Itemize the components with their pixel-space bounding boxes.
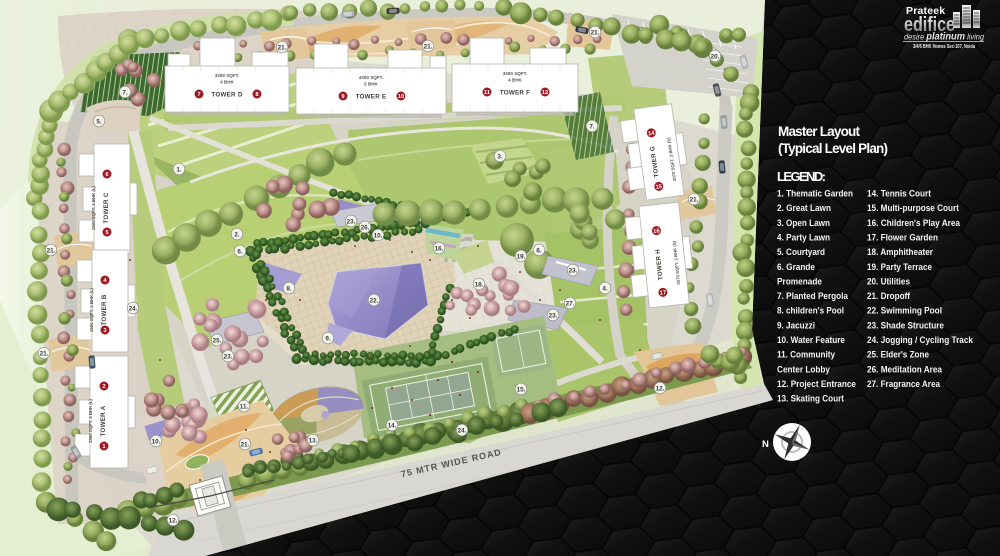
svg-text:18. Amphitheater: 18. Amphitheater [867, 247, 933, 257]
svg-text:22.: 22. [370, 297, 379, 304]
svg-text:23. Shade Structure: 23. Shade Structure [867, 320, 944, 330]
svg-text:TOWER B: TOWER B [101, 294, 108, 325]
svg-text:4 BHK: 4 BHK [508, 78, 522, 83]
svg-text:9. Jacuzzi: 9. Jacuzzi [777, 320, 815, 330]
svg-text:19. Party Terrace: 19. Party Terrace [867, 262, 932, 272]
svg-text:12.: 12. [169, 517, 178, 524]
svg-text:17: 17 [659, 290, 666, 297]
svg-text:5.: 5. [96, 118, 102, 125]
svg-text:2500 SQFT. 3 BHK (L): 2500 SQFT. 3 BHK (L) [89, 288, 94, 332]
svg-text:7: 7 [197, 92, 200, 98]
svg-text:10. Water Feature: 10. Water Feature [777, 335, 845, 345]
svg-text:3/4/5 BHK Homes Sec-107, Noida: 3/4/5 BHK Homes Sec-107, Noida [913, 44, 976, 50]
svg-text:11: 11 [484, 90, 491, 96]
svg-text:(Typical Level Plan): (Typical Level Plan) [778, 141, 888, 156]
svg-text:3300 SQFT.: 3300 SQFT. [215, 73, 240, 78]
svg-text:2.: 2. [234, 231, 240, 238]
svg-text:5 BHK: 5 BHK [364, 82, 378, 87]
svg-text:Promenade: Promenade [777, 276, 822, 286]
svg-text:20.: 20. [711, 53, 720, 60]
svg-text:26. Meditation Area: 26. Meditation Area [867, 364, 943, 374]
svg-text:3. Open Lawn: 3. Open Lawn [777, 218, 830, 228]
svg-text:14. Tennis Court: 14. Tennis Court [867, 189, 931, 199]
svg-text:Center Lobby: Center Lobby [777, 364, 831, 374]
svg-text:21.: 21. [690, 196, 699, 203]
svg-text:2500 SQFT. 3 BHK (L): 2500 SQFT. 3 BHK (L) [88, 399, 93, 443]
svg-text:TOWER E: TOWER E [356, 94, 387, 101]
svg-text:desire platinum living: desire platinum living [904, 32, 985, 43]
svg-text:6. Grande: 6. Grande [777, 262, 815, 272]
svg-text:21.: 21. [241, 441, 250, 448]
svg-text:3300 SQFT.: 3300 SQFT. [503, 71, 528, 76]
svg-text:16.: 16. [435, 245, 444, 252]
svg-text:21.: 21. [424, 43, 433, 50]
svg-text:LEGEND:: LEGEND: [777, 169, 826, 184]
svg-text:20. Utilities: 20. Utilities [867, 276, 910, 286]
svg-text:TOWER A: TOWER A [100, 405, 107, 436]
svg-text:8. children's Pool: 8. children's Pool [777, 306, 844, 316]
svg-text:15. Multi-purpose Court: 15. Multi-purpose Court [867, 203, 959, 213]
svg-text:1. Thematic Garden: 1. Thematic Garden [777, 189, 853, 199]
svg-text:21.: 21. [40, 350, 49, 357]
svg-text:27.: 27. [566, 300, 575, 307]
svg-text:13.: 13. [309, 437, 318, 444]
svg-text:21.: 21. [47, 247, 56, 254]
svg-text:10.: 10. [374, 232, 383, 239]
svg-text:21. Dropoff: 21. Dropoff [867, 291, 911, 301]
svg-text:10: 10 [398, 94, 404, 100]
svg-text:2: 2 [102, 384, 105, 390]
svg-text:11.: 11. [240, 403, 249, 410]
svg-text:9.: 9. [325, 335, 331, 342]
svg-text:23.: 23. [224, 353, 233, 360]
svg-text:12: 12 [542, 90, 548, 96]
svg-text:23.: 23. [347, 218, 356, 225]
svg-text:21.: 21. [591, 29, 600, 36]
svg-text:3.: 3. [497, 153, 503, 160]
svg-text:4 BHK: 4 BHK [220, 80, 234, 85]
svg-text:11. Community: 11. Community [777, 350, 836, 360]
svg-text:4300 SQFT.: 4300 SQFT. [359, 75, 384, 80]
svg-text:TOWER C: TOWER C [103, 192, 110, 223]
svg-text:2500 SQFT. 3 BHK (L): 2500 SQFT. 3 BHK (L) [91, 186, 96, 230]
svg-text:7. Planted Pergola: 7. Planted Pergola [777, 291, 849, 301]
svg-text:6.: 6. [237, 248, 243, 255]
svg-text:15.: 15. [517, 386, 526, 393]
svg-text:1.: 1. [176, 166, 182, 173]
svg-text:2. Great Lawn: 2. Great Lawn [777, 203, 831, 213]
svg-text:19.: 19. [517, 253, 526, 260]
svg-text:7.: 7. [122, 89, 128, 96]
svg-text:23.: 23. [549, 312, 558, 319]
svg-text:21.: 21. [278, 44, 287, 51]
svg-text:14.: 14. [388, 422, 397, 429]
svg-text:6.: 6. [536, 247, 542, 254]
svg-text:24.: 24. [458, 427, 467, 434]
svg-text:24.: 24. [129, 305, 138, 312]
svg-text:17. Flower Garden: 17. Flower Garden [867, 233, 938, 243]
svg-text:TOWER D: TOWER D [211, 92, 242, 99]
svg-text:13. Skating Court: 13. Skating Court [777, 394, 844, 404]
svg-text:4. Party Lawn: 4. Party Lawn [777, 233, 830, 243]
svg-text:23.: 23. [569, 267, 578, 274]
svg-text:N: N [762, 439, 769, 450]
svg-text:27. Fragrance Area: 27. Fragrance Area [867, 379, 941, 389]
svg-text:12. Project Entrance: 12. Project Entrance [777, 379, 856, 389]
svg-text:26.: 26. [361, 224, 370, 231]
svg-text:TOWER F: TOWER F [500, 90, 531, 97]
svg-text:8.: 8. [286, 285, 292, 292]
svg-text:25.: 25. [213, 337, 222, 344]
svg-text:4.: 4. [602, 285, 608, 292]
svg-text:7.: 7. [589, 123, 595, 130]
svg-text:22. Swimming Pool: 22. Swimming Pool [867, 306, 942, 316]
svg-text:5. Courtyard: 5. Courtyard [777, 247, 825, 257]
svg-text:25. Elder's Zone: 25. Elder's Zone [867, 350, 929, 360]
svg-text:24. Jogging / Cycling Track: 24. Jogging / Cycling Track [867, 335, 974, 345]
svg-text:10.: 10. [152, 438, 161, 445]
svg-text:12.: 12. [656, 385, 665, 392]
svg-text:16. Children's Play Area: 16. Children's Play Area [867, 218, 961, 228]
svg-text:18.: 18. [475, 281, 484, 288]
svg-text:Master Layout: Master Layout [778, 124, 861, 139]
